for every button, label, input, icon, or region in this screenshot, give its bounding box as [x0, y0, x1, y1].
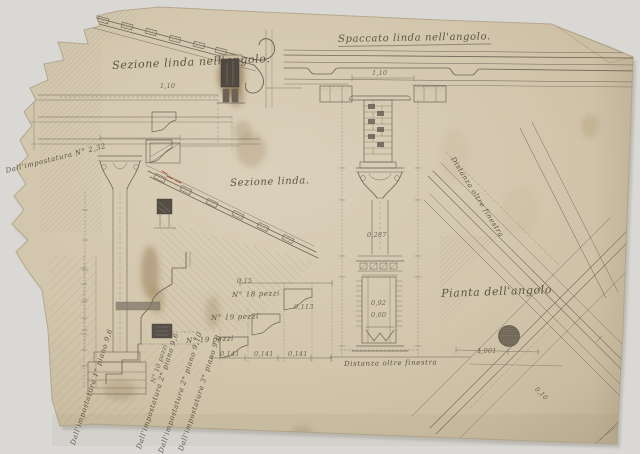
dimension-label: 1,10	[160, 83, 175, 90]
dimension-label: 0,141	[288, 351, 308, 358]
photo-backdrop: Sezione linda nell'angolo. Spaccato lind…	[0, 0, 640, 454]
dimension-label: 0,92	[371, 300, 386, 307]
dimension-label: 0,113	[294, 304, 314, 311]
dimension-label: 1,001	[477, 348, 497, 355]
dimension-label: 0,141	[254, 351, 274, 358]
dimension-label: 0,15	[237, 278, 252, 285]
column-plan-circle	[499, 326, 520, 347]
paper-sheet	[12, 7, 633, 444]
dimension-label: 0,287	[367, 232, 387, 239]
dimension-label: 0,141	[220, 351, 240, 358]
dimension-label: 0,60	[371, 312, 386, 319]
dimension-label: 1,10	[372, 70, 387, 77]
